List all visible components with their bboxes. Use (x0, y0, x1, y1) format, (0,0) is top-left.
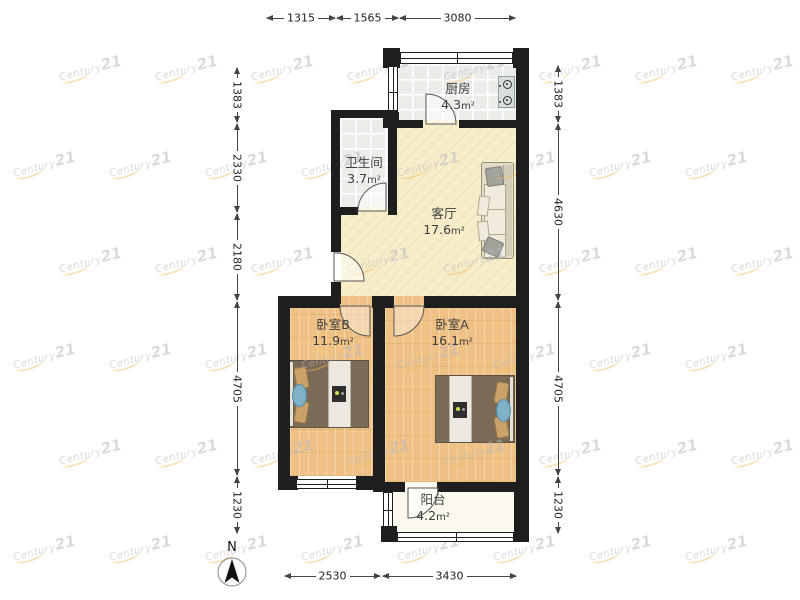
bathroom-door-threshold (358, 207, 388, 215)
watermark-logo: Century21 (729, 51, 796, 85)
dimension-left-5: 1230 (231, 477, 243, 533)
wall-segment (331, 215, 341, 252)
watermark-logo: Century21 (11, 339, 78, 373)
wall-segment (424, 296, 516, 308)
bed-a-icon (435, 375, 515, 443)
dimension-right-1: 1383 (552, 66, 564, 122)
living-room-floor-hall (341, 215, 397, 296)
watermark-logo: Century21 (11, 147, 78, 181)
bathroom-label: 卫生间 3.7m² (326, 155, 402, 187)
balcony-label: 阳台 4.2m² (395, 492, 471, 524)
watermark-logo: Century21 (249, 243, 316, 277)
watermark-logo: Century21 (587, 147, 654, 181)
kitchen-door-threshold (423, 120, 459, 128)
bed-b-icon (288, 360, 369, 428)
watermark-logo: Century21 (11, 531, 78, 565)
dimension-left-4: 4705 (231, 302, 243, 475)
dimension-top-1: 1315 (267, 12, 335, 24)
bedroom-a-door-threshold (394, 296, 424, 308)
wall-segment (331, 207, 358, 215)
dimension-right-3: 4705 (552, 302, 564, 475)
wall-segment (331, 110, 397, 118)
watermark-logo: Century21 (729, 435, 796, 469)
watermark-logo: Century21 (633, 51, 700, 85)
balcony-door-threshold (405, 482, 437, 492)
wall-segment (516, 308, 529, 490)
watermark-logo: Century21 (683, 339, 750, 373)
wall-segment (383, 48, 400, 68)
watermark-logo: Century21 (153, 243, 220, 277)
wall-segment (278, 476, 298, 490)
dimension-top-3: 3080 (400, 12, 515, 24)
kitchen-label: 厨房 4.3m² (408, 81, 508, 113)
wall-segment (516, 66, 529, 308)
wall-segment (397, 120, 423, 128)
dimension-left-1: 1383 (231, 68, 243, 122)
watermark-logo: Century21 (537, 51, 604, 85)
watermark-logo: Century21 (587, 531, 654, 565)
wall-segment (437, 482, 516, 492)
dimension-top-2: 1565 (337, 12, 398, 24)
bedroom-b-label: 卧室B 11.9m² (293, 317, 373, 349)
bedroom-b-window (296, 479, 358, 489)
watermark-logo: Century21 (299, 531, 366, 565)
north-compass: N (212, 541, 252, 593)
wall-segment (381, 526, 397, 542)
balcony-window (397, 532, 514, 542)
sofa-icon (481, 162, 514, 259)
watermark-logo: Century21 (107, 531, 174, 565)
watermark-logo: Century21 (683, 531, 750, 565)
dimension-right-4: 1230 (552, 477, 564, 533)
wall-segment (373, 482, 405, 492)
compass-icon (215, 555, 249, 589)
wall-segment (373, 308, 385, 482)
wall-segment (459, 120, 516, 128)
dimension-bottom-1: 2530 (285, 570, 380, 582)
watermark-logo: Century21 (153, 51, 220, 85)
kitchen-window (400, 52, 513, 64)
watermark-logo: Century21 (57, 51, 124, 85)
watermark-logo: Century21 (107, 339, 174, 373)
wall-segment (372, 296, 394, 308)
floor-plan: Century21Century21Century21Century21Cent… (0, 0, 800, 600)
bedroom-b-door-threshold (340, 296, 372, 308)
wall-segment (278, 296, 340, 308)
watermark-logo: Century21 (729, 243, 796, 277)
balcony-side-window (383, 492, 393, 528)
dimension-right-2: 4630 (552, 124, 564, 300)
watermark-logo: Century21 (633, 435, 700, 469)
watermark-logo: Century21 (537, 435, 604, 469)
wall-segment (513, 48, 529, 68)
watermark-logo: Century21 (57, 243, 124, 277)
wall-segment (514, 490, 529, 542)
dimension-left-2: 2330 (231, 124, 243, 212)
watermark-logo: Century21 (683, 147, 750, 181)
watermark-logo: Century21 (587, 339, 654, 373)
dimension-left-3: 2180 (231, 214, 243, 300)
watermark-logo: Century21 (633, 243, 700, 277)
bedroom-a-label: 卧室A 16.1m² (412, 317, 492, 349)
living-room-label: 客厅 17.6m² (404, 206, 484, 238)
watermark-logo: Century21 (107, 147, 174, 181)
watermark-logo: Century21 (537, 243, 604, 277)
north-label: N (212, 541, 252, 554)
watermark-logo: Century21 (153, 435, 220, 469)
watermark-logo: Century21 (249, 51, 316, 85)
watermark-logo: Century21 (57, 435, 124, 469)
dimension-bottom-2: 3430 (383, 570, 516, 582)
wall-segment (278, 308, 290, 488)
